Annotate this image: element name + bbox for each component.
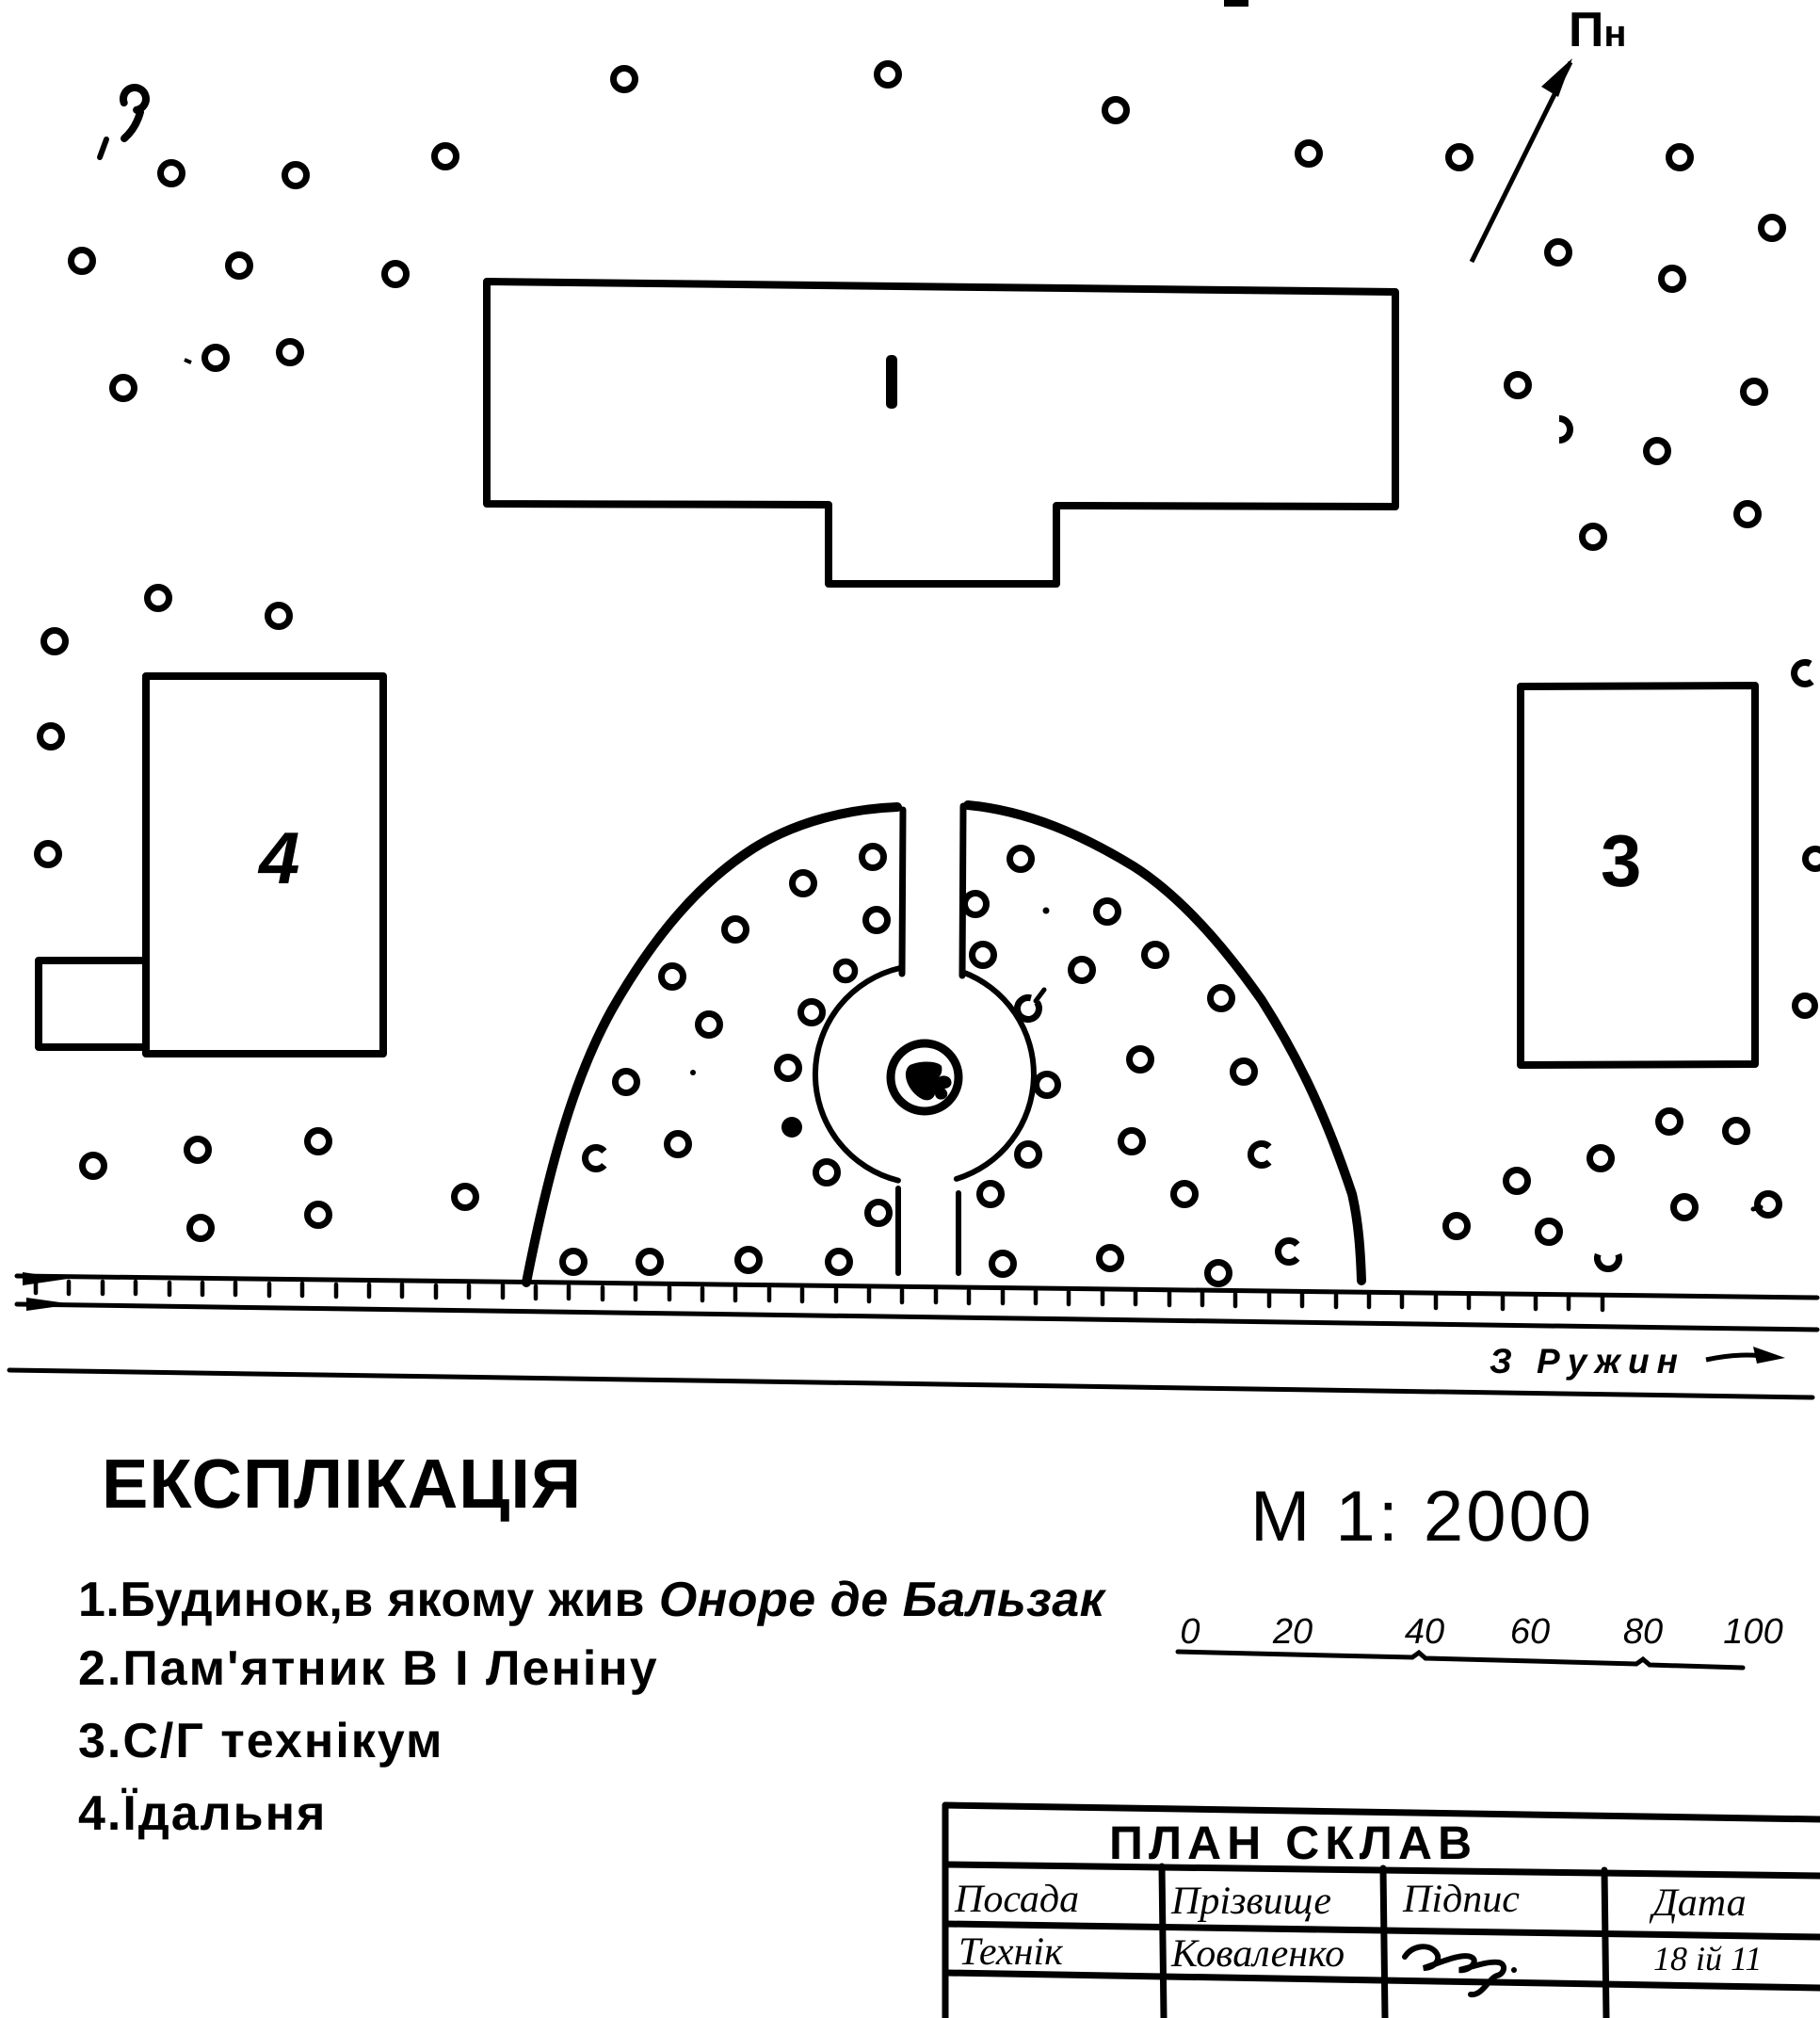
svg-text:40: 40 bbox=[1405, 1612, 1444, 1652]
svg-text:Коваленко: Коваленко bbox=[1170, 1932, 1345, 1976]
svg-text:3: 3 bbox=[1601, 819, 1641, 902]
svg-text:ЕКСПЛІКАЦІЯ: ЕКСПЛІКАЦІЯ bbox=[102, 1445, 582, 1523]
svg-text:80: 80 bbox=[1623, 1612, 1663, 1652]
svg-text:Підпис: Підпис bbox=[1402, 1878, 1520, 1921]
svg-text:Технік: Технік bbox=[958, 1930, 1063, 1974]
svg-text:З Ружин: З Ружин bbox=[1490, 1342, 1685, 1380]
svg-text:18 ій 11: 18 ій 11 bbox=[1653, 1940, 1762, 1978]
svg-text:Дата: Дата bbox=[1649, 1881, 1747, 1925]
svg-text:Прізвище: Прізвище bbox=[1170, 1880, 1331, 1923]
svg-text:1.Будинок,в якому жив Оноре де: 1.Будинок,в якому жив Оноре де Бальзак bbox=[78, 1573, 1107, 1627]
svg-text:4: 4 bbox=[257, 816, 299, 899]
svg-text:М 1: 2000: М 1: 2000 bbox=[1250, 1477, 1594, 1557]
svg-text:20: 20 bbox=[1272, 1612, 1313, 1652]
svg-text:Посада: Посада bbox=[954, 1878, 1079, 1921]
svg-text:ПЛАН СКЛАВ: ПЛАН СКЛАВ bbox=[1109, 1816, 1477, 1869]
svg-text:60: 60 bbox=[1510, 1612, 1550, 1652]
svg-text:0: 0 bbox=[1180, 1612, 1200, 1652]
svg-text:100: 100 bbox=[1723, 1612, 1782, 1652]
svg-text:2.Пам'ятник В І Леніну: 2.Пам'ятник В І Леніну bbox=[78, 1641, 659, 1696]
svg-text:4.Їдальня: 4.Їдальня bbox=[78, 1786, 327, 1841]
svg-text:3.С/Г технікум: 3.С/Г технікум bbox=[78, 1714, 444, 1768]
